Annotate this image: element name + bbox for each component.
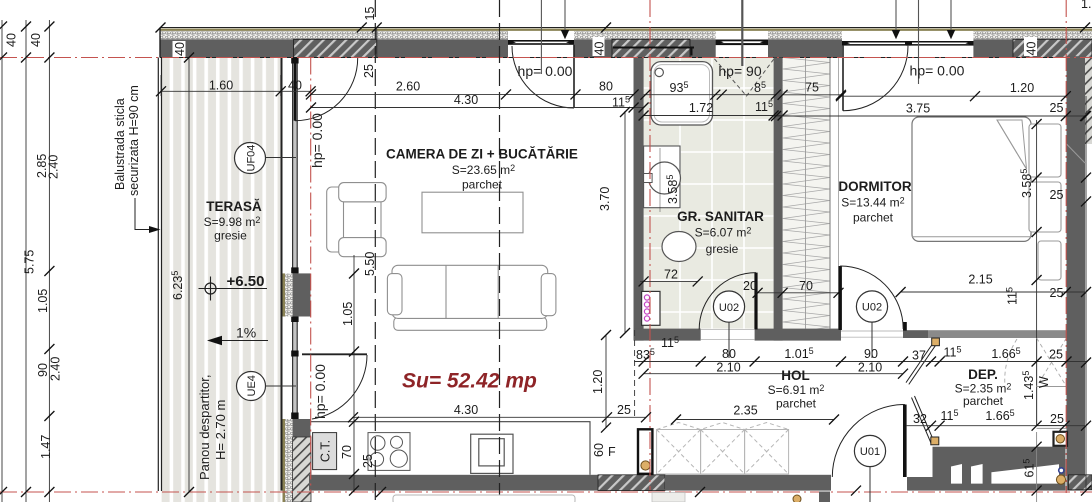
svg-text:S=9.98 m2: S=9.98 m2	[204, 215, 261, 229]
svg-text:U01: U01	[860, 446, 880, 458]
svg-text:gresie: gresie	[214, 229, 247, 243]
svg-text:parchet: parchet	[963, 394, 1004, 408]
svg-text:TERASĂ: TERASĂ	[206, 199, 262, 214]
svg-text:2.40: 2.40	[49, 357, 63, 381]
svg-text:Balustrada sticla: Balustrada sticla	[113, 98, 127, 190]
svg-text:parchet: parchet	[462, 178, 503, 192]
svg-text:25: 25	[362, 64, 376, 78]
svg-text:S=6.07 m2: S=6.07 m2	[695, 226, 752, 240]
svg-text:HOL: HOL	[781, 368, 810, 383]
svg-text:80: 80	[599, 80, 613, 94]
svg-text:25: 25	[1049, 348, 1063, 362]
svg-text:UE4: UE4	[246, 375, 258, 396]
svg-text:1.20: 1.20	[591, 370, 605, 394]
svg-text:S=23.65 m2: S=23.65 m2	[452, 163, 515, 177]
svg-text:2.60: 2.60	[396, 80, 420, 94]
svg-text:25: 25	[1050, 101, 1064, 115]
svg-text:2.35: 2.35	[733, 404, 757, 418]
svg-text:5.75: 5.75	[23, 250, 37, 274]
svg-text:32: 32	[913, 412, 927, 426]
svg-text:S=13.44 m2: S=13.44 m2	[841, 196, 904, 210]
svg-text:40: 40	[1025, 42, 1039, 56]
svg-text:Su= 52.42 mp: Su= 52.42 mp	[402, 370, 537, 393]
svg-text:F: F	[608, 445, 616, 459]
svg-text:S=6.91 m2: S=6.91 m2	[768, 383, 825, 397]
svg-text:1.05: 1.05	[36, 289, 50, 313]
svg-text:2.15: 2.15	[968, 273, 992, 287]
svg-text:25: 25	[1050, 412, 1064, 426]
svg-text:parchet: parchet	[776, 397, 817, 411]
svg-text:3.70: 3.70	[598, 187, 612, 211]
svg-text:2.10: 2.10	[858, 361, 882, 375]
svg-text:hp= 0.00: hp= 0.00	[910, 63, 965, 79]
svg-text:1%: 1%	[236, 325, 256, 341]
svg-text:90: 90	[864, 347, 878, 361]
svg-text:DORMITOR: DORMITOR	[838, 179, 911, 194]
svg-text:1.72: 1.72	[689, 101, 713, 115]
svg-text:H= 2.70 m: H= 2.70 m	[213, 400, 228, 460]
svg-text:40: 40	[593, 42, 607, 56]
svg-text:gresie: gresie	[706, 242, 739, 256]
svg-text:Panou despartitor,: Panou despartitor,	[197, 374, 212, 480]
svg-text:70: 70	[799, 279, 813, 293]
svg-text:70: 70	[340, 445, 354, 459]
svg-text:C.T.: C.T.	[319, 440, 333, 462]
svg-text:hp= 0.00: hp= 0.00	[312, 364, 328, 419]
svg-text:hp= 90: hp= 90	[718, 63, 761, 79]
svg-text:+6.50: +6.50	[227, 273, 265, 290]
svg-text:CAMERA DE ZI + BUCĂTĂRIE: CAMERA DE ZI + BUCĂTĂRIE	[386, 147, 578, 162]
svg-text:1.: 1.	[1081, 0, 1091, 11]
svg-text:4.30: 4.30	[454, 403, 478, 417]
svg-text:W: W	[1037, 376, 1051, 388]
svg-text:1.05: 1.05	[341, 302, 355, 326]
svg-text:1.20: 1.20	[1010, 81, 1034, 95]
svg-text:3.75: 3.75	[906, 102, 930, 116]
svg-text:25: 25	[617, 403, 631, 417]
svg-text:72: 72	[664, 268, 678, 282]
svg-text:parchet: parchet	[853, 211, 894, 225]
svg-text:15: 15	[363, 7, 377, 21]
svg-text:20: 20	[743, 279, 757, 293]
svg-text:37: 37	[912, 349, 926, 363]
svg-text:UF04: UF04	[246, 145, 258, 172]
svg-text:U02: U02	[719, 302, 739, 314]
svg-text:40: 40	[5, 33, 19, 47]
svg-text:25: 25	[1050, 188, 1064, 202]
svg-text:U02: U02	[862, 302, 882, 314]
svg-text:5.50: 5.50	[363, 252, 377, 276]
svg-text:40: 40	[29, 33, 43, 47]
svg-text:25: 25	[361, 454, 375, 468]
svg-text:1.47: 1.47	[39, 435, 53, 459]
svg-text:1.60: 1.60	[209, 79, 233, 93]
svg-text:DEP.: DEP.	[968, 367, 998, 382]
svg-text:40: 40	[288, 79, 302, 93]
svg-text:40: 40	[173, 42, 187, 56]
svg-text:hp= 0.00: hp= 0.00	[518, 63, 573, 79]
svg-text:securizata H=90 cm: securizata H=90 cm	[127, 85, 141, 196]
svg-text:60: 60	[592, 443, 606, 457]
svg-text:2.10: 2.10	[716, 361, 740, 375]
svg-text:2.40: 2.40	[47, 155, 61, 179]
svg-text:hp= 0.00: hp= 0.00	[309, 113, 325, 168]
svg-text:75: 75	[805, 81, 819, 95]
svg-text:GR. SANITAR: GR. SANITAR	[677, 209, 764, 224]
svg-text:4.30: 4.30	[454, 93, 478, 107]
svg-text:25: 25	[1050, 286, 1064, 300]
